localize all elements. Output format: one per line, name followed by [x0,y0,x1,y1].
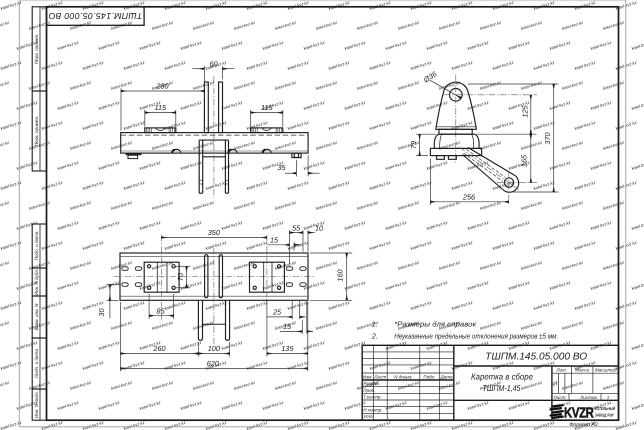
svg-text:15: 15 [270,236,279,245]
svg-text:ЗАВОД РЗК: ЗАВОД РЗК [595,412,614,417]
svg-text:1: 1 [607,395,610,400]
svg-text:Перв. примен.: Перв. примен. [34,116,39,147]
svg-text:ТШПМ.145.05.000 ВО: ТШПМ.145.05.000 ВО [485,352,587,363]
svg-text:125: 125 [520,104,529,117]
svg-text:35: 35 [277,163,286,172]
svg-text:370: 370 [543,132,552,144]
svg-text:Лист.: Лист. [553,395,567,400]
svg-text:KVZR: KVZR [564,405,594,421]
svg-text:70: 70 [176,273,185,281]
svg-text:Лит.: Лит. [555,368,567,373]
svg-text:60: 60 [209,59,217,68]
svg-text:КОТЕЛЬНЫЙ: КОТЕЛЬНЫЙ [595,406,616,411]
svg-text:55: 55 [292,223,301,232]
svg-text:Каретка в сборе: Каретка в сборе [471,372,533,382]
svg-text:И: И [553,381,558,388]
svg-text:25: 25 [272,307,282,316]
svg-text:Подп.: Подп. [423,374,435,379]
svg-text:10: 10 [315,223,323,232]
svg-text:2.: 2. [371,331,378,340]
svg-text:620: 620 [207,359,219,368]
svg-text:30: 30 [97,308,106,316]
svg-text:15: 15 [283,322,292,331]
svg-text:100: 100 [208,344,220,353]
svg-text:ТШПМ.145.05.000 ВО: ТШПМ.145.05.000 ВО [48,11,142,21]
svg-text:Н.контр.: Н.контр. [363,408,382,413]
svg-text:85: 85 [156,306,165,315]
svg-text:Подп. и дата: Подп. и дата [34,349,39,378]
svg-text:79: 79 [409,141,418,149]
svg-text:Масса: Масса [575,368,589,373]
svg-text:Инв. N подл.: Инв. N подл. [34,391,39,418]
svg-text:165: 165 [519,154,528,167]
svg-text:Листов: Листов [579,395,597,400]
svg-text:260: 260 [152,344,165,353]
svg-text:Формат А3: Формат А3 [569,422,597,428]
svg-text:Утб.: Утб. [363,414,374,419]
svg-text:115: 115 [261,103,274,112]
svg-text:135: 135 [281,344,294,353]
svg-text:Дата: Дата [439,374,453,379]
svg-text:Изм.: Изм. [363,374,373,379]
svg-text:*Размеры для справок: *Размеры для справок [394,320,477,329]
svg-text:1.: 1. [371,320,377,329]
svg-text:Подп. и дата: Подп. и дата [34,231,39,260]
svg-text:280: 280 [155,82,168,91]
svg-text:256: 256 [462,192,476,201]
svg-text:ТШПМ-1,45: ТШПМ-1,45 [483,383,521,393]
svg-text:Т.контр.: Т.контр. [363,394,382,399]
svg-text:Проб.: Проб. [363,388,375,393]
svg-text:Разраб.: Разраб. [363,381,380,386]
svg-text:N докум.: N докум. [394,374,413,379]
svg-text:350: 350 [208,228,220,237]
svg-text:Взам. инв. N: Взам. инв. N [34,303,39,330]
svg-text:Лист: Лист [373,374,386,379]
svg-text:115: 115 [154,103,167,112]
svg-text:Масштаб: Масштаб [595,368,617,373]
svg-text:160: 160 [335,269,344,281]
svg-text:Инв. N дубл.: Инв. N дубл. [34,269,39,296]
svg-text:Неуказанные предельные отклоне: Неуказанные предельные отклонения размер… [394,331,558,340]
svg-text:Перв. примен.: Перв. примен. [34,34,39,65]
